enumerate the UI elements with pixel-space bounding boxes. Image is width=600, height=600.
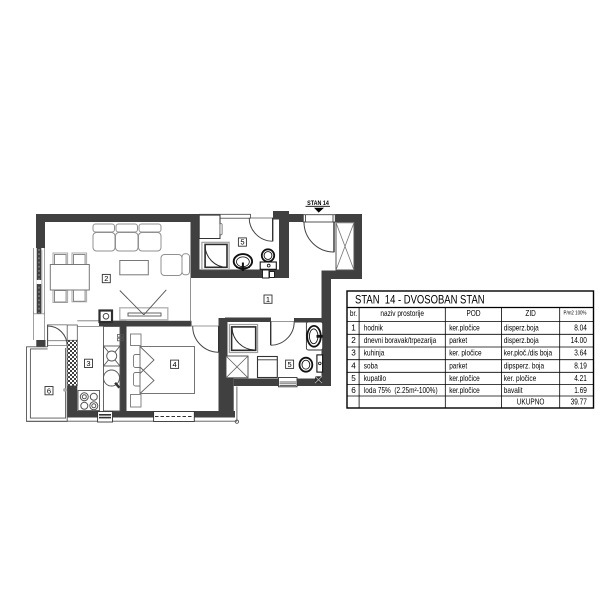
svg-text:39.77: 39.77 — [571, 398, 588, 407]
svg-text:dnevni boravak/trpezarija: dnevni boravak/trpezarija — [364, 336, 437, 345]
svg-text:ker.pločice: ker.pločice — [449, 374, 480, 383]
svg-text:disperz.boja: disperz.boja — [504, 336, 539, 345]
svg-text:soba: soba — [364, 361, 378, 370]
svg-text:1.69: 1.69 — [574, 386, 587, 395]
svg-text:8.19: 8.19 — [574, 361, 587, 370]
svg-text:ker. pločice: ker. pločice — [504, 374, 537, 383]
svg-text:P/m2 100%: P/m2 100% — [564, 311, 587, 317]
svg-text:POD: POD — [467, 309, 481, 318]
svg-text:hodnik: hodnik — [364, 323, 384, 332]
svg-text:parket: parket — [449, 361, 468, 370]
svg-text:dipsperz. boja: dipsperz. boja — [504, 361, 545, 370]
svg-text:4.21: 4.21 — [574, 374, 587, 383]
svg-text:ker.pločice: ker.pločice — [449, 386, 480, 395]
svg-text:parket: parket — [449, 336, 468, 345]
svg-text:ker.ploč./dis boja: ker.ploč./dis boja — [504, 349, 553, 358]
svg-text:STAN 14 - DVOSOBAN STAN: STAN 14 - DVOSOBAN STAN — [355, 292, 485, 306]
svg-text:loda 75% (2.25m²-100%): loda 75% (2.25m²-100%) — [364, 386, 438, 395]
svg-text:ker.pločice: ker.pločice — [449, 323, 480, 332]
svg-text:ZID: ZID — [525, 309, 535, 318]
svg-text:3: 3 — [86, 359, 90, 368]
svg-text:5: 5 — [240, 238, 244, 247]
svg-text:2: 2 — [104, 274, 108, 283]
svg-text:kupatilo: kupatilo — [364, 374, 387, 383]
svg-text:5: 5 — [351, 374, 356, 383]
svg-text:1: 1 — [266, 295, 270, 304]
svg-text:1: 1 — [351, 323, 356, 332]
svg-text:3.64: 3.64 — [574, 349, 587, 358]
svg-text:naziv prostorije: naziv prostorije — [380, 309, 424, 318]
svg-text:disperz.boja: disperz.boja — [504, 323, 539, 332]
svg-text:4: 4 — [173, 360, 177, 369]
svg-text:6: 6 — [47, 386, 51, 395]
svg-text:6: 6 — [351, 386, 356, 395]
svg-text:UKUPNO: UKUPNO — [517, 398, 545, 407]
svg-text:14.00: 14.00 — [571, 336, 588, 345]
svg-text:br.: br. — [350, 309, 357, 318]
svg-text:bavalit: bavalit — [504, 386, 523, 395]
svg-text:5: 5 — [288, 360, 292, 369]
svg-text:ker. pločice: ker. pločice — [449, 349, 482, 358]
svg-text:4: 4 — [351, 361, 356, 370]
svg-text:3: 3 — [351, 349, 356, 358]
svg-text:kuhinja: kuhinja — [364, 349, 385, 358]
svg-text:8.04: 8.04 — [574, 323, 587, 332]
svg-text:2: 2 — [351, 336, 356, 345]
